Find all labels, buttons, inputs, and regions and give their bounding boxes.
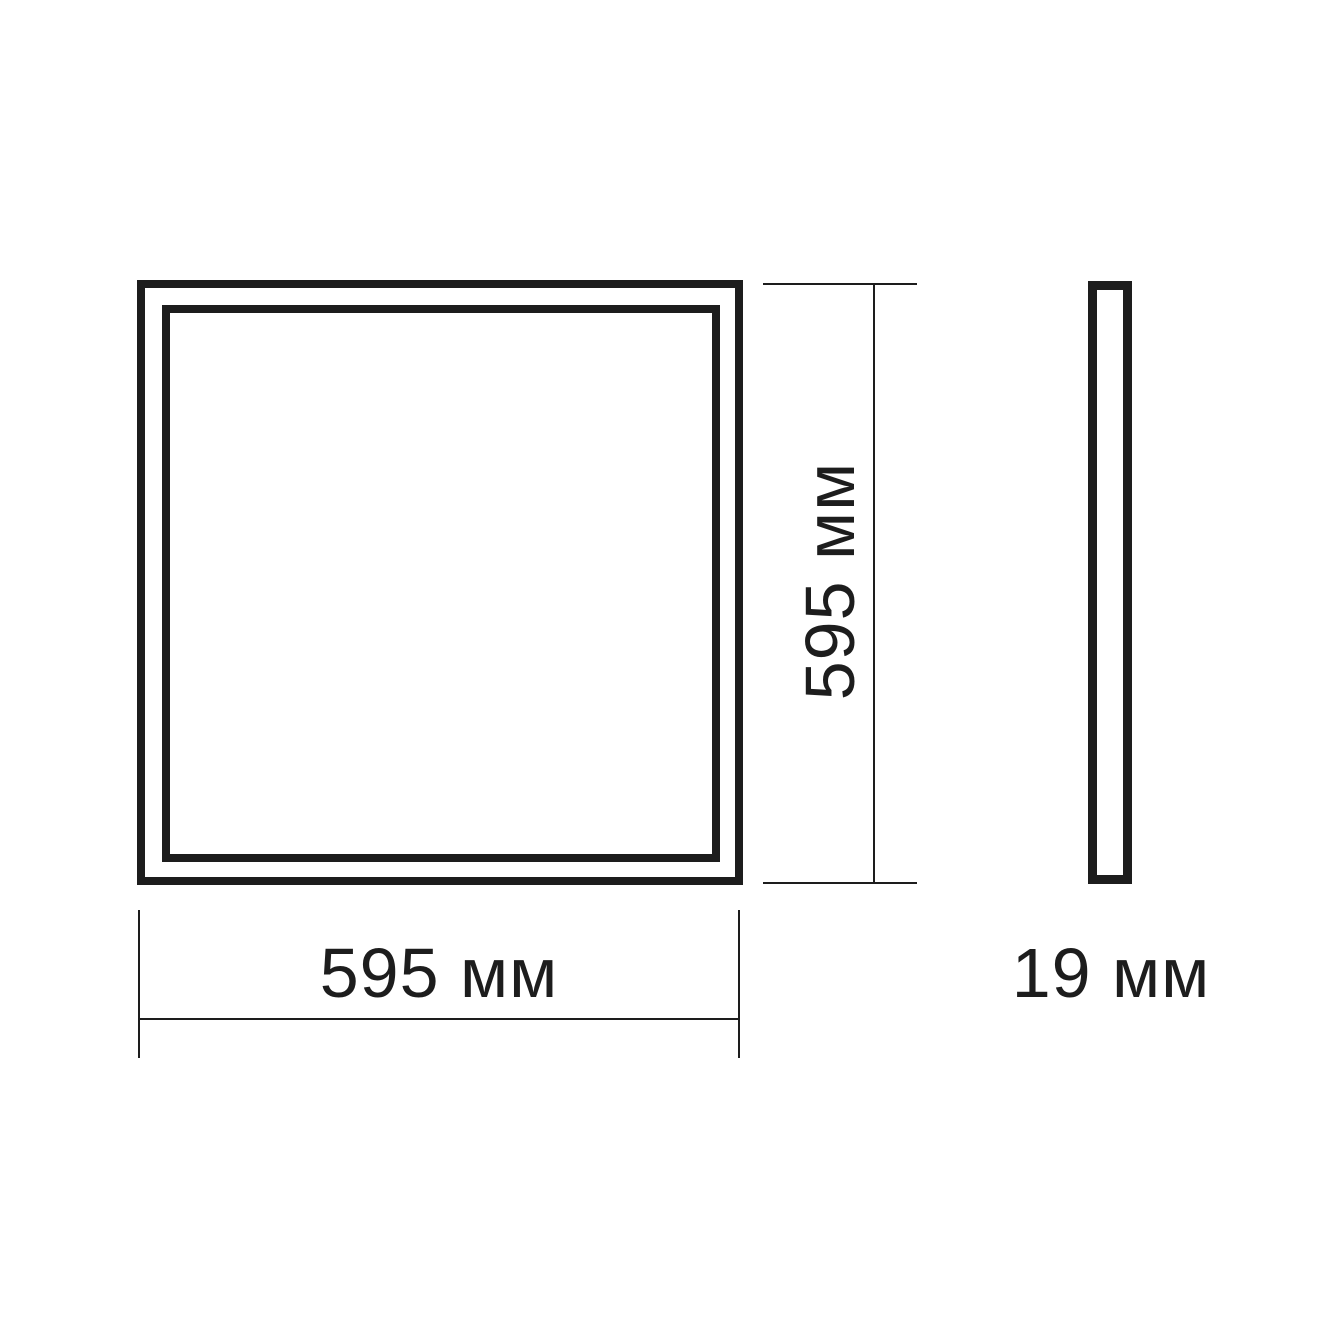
height-extension-line-top bbox=[763, 283, 917, 285]
width-extension-line-left bbox=[138, 910, 140, 1058]
height-extension-line-bottom bbox=[763, 882, 917, 884]
width-extension-line-right bbox=[738, 910, 740, 1058]
width-dimension-label: 595 мм bbox=[289, 931, 589, 1015]
width-dimension-line bbox=[138, 1018, 740, 1020]
depth-dimension-label: 19 мм bbox=[961, 931, 1261, 1015]
panel-inner-frame bbox=[162, 305, 720, 862]
height-dimension-line bbox=[873, 284, 875, 884]
drawing-canvas: 595 мм 595 мм 19 мм bbox=[0, 0, 1340, 1340]
height-dimension-label: 595 мм bbox=[788, 431, 872, 731]
panel-side-profile bbox=[1088, 281, 1132, 884]
